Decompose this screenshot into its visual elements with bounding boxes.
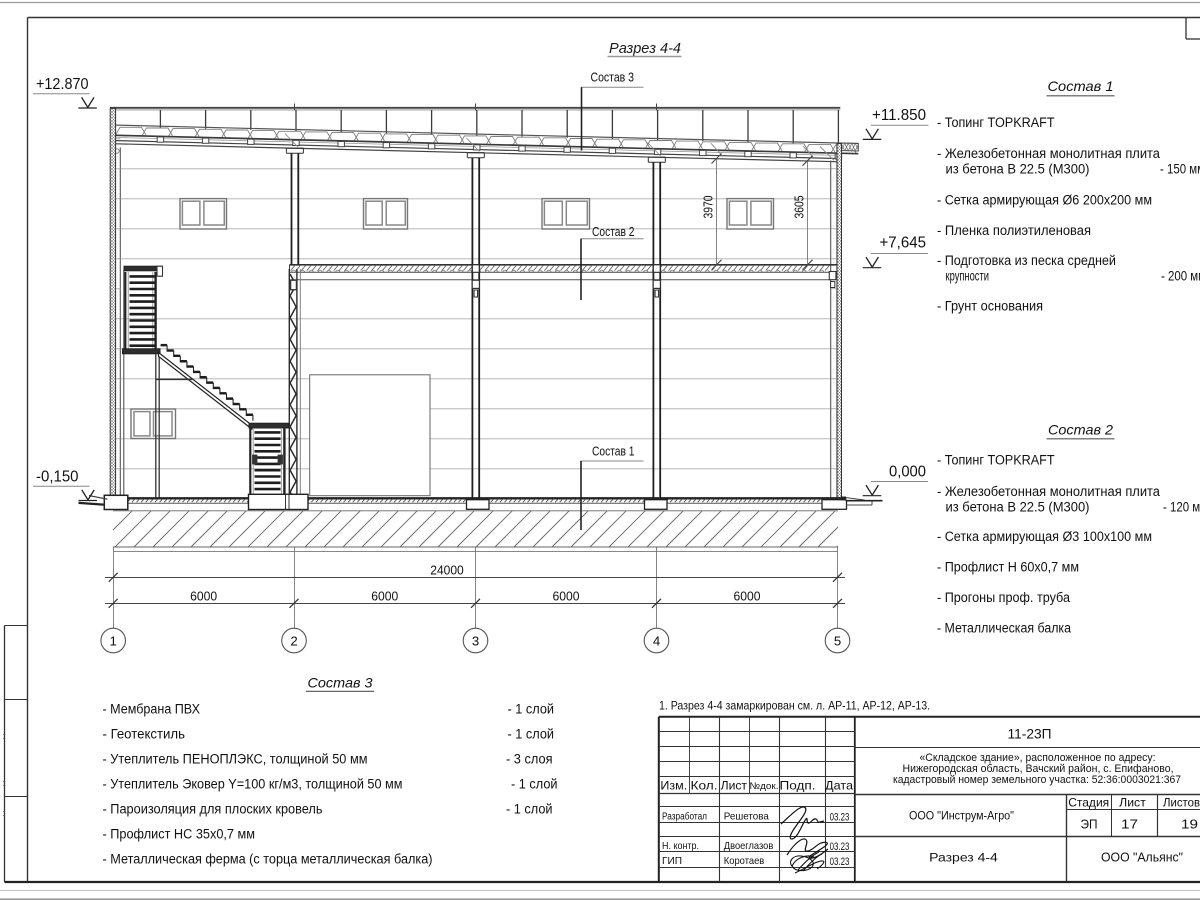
svg-text:- Профлист НС 35х0,7 мм: - Профлист НС 35х0,7 мм <box>103 827 256 842</box>
svg-text:ООО "Инструм-Агро": ООО "Инструм-Агро" <box>909 809 1014 823</box>
svg-text:Кол.: Кол. <box>691 779 718 793</box>
svg-text:Разработал: Разработал <box>662 811 707 822</box>
svg-text:- Пароизоляция для плоских кро: - Пароизоляция для плоских кровель <box>103 802 323 817</box>
svg-text:- 1 слой: - 1 слой <box>508 727 555 742</box>
svg-text:- 150 мм: - 150 мм <box>1160 162 1200 177</box>
svg-text:- Сетка армирующая Ø3 100х100: - Сетка армирующая Ø3 100х100 мм <box>937 529 1152 544</box>
svg-text:+11.850: +11.850 <box>872 107 926 124</box>
svg-text:- Утеплитель ПЕНОПЛЭКС, толщин: - Утеплитель ПЕНОПЛЭКС, толщиной 50 мм <box>103 752 368 767</box>
svg-text:Состав 2: Состав 2 <box>592 224 635 239</box>
svg-text:- Металлическая ферма (с торца: - Металлическая ферма (с торца металличе… <box>103 852 433 867</box>
svg-text:03.23: 03.23 <box>830 856 850 868</box>
svg-text:- Пленка полиэтиленовая: - Пленка полиэтиленовая <box>937 223 1091 238</box>
svg-text:5: 5 <box>834 633 841 648</box>
svg-text:- 1 слой: - 1 слой <box>508 702 555 717</box>
svg-text:19: 19 <box>1181 817 1198 832</box>
svg-text:Разрез 4-4: Разрез 4-4 <box>609 40 681 57</box>
svg-text:1. Разрез 4-4 замаркирован см.: 1. Разрез 4-4 замаркирован см. л. АР-11,… <box>659 699 930 713</box>
svg-text:+12.870: +12.870 <box>36 76 89 93</box>
svg-text:Изм.: Изм. <box>660 779 687 793</box>
svg-text:Состав 3: Состав 3 <box>308 676 373 691</box>
svg-text:- Железобетонная монолитная п: - Железобетонная монолитная плита <box>937 146 1161 161</box>
svg-text:- 1 слой: - 1 слой <box>506 802 553 817</box>
svg-text:Разрез 4-4: Разрез 4-4 <box>929 851 998 865</box>
svg-text:Подп.: Подп. <box>780 779 816 793</box>
svg-text:Состав 3: Состав 3 <box>591 70 635 85</box>
svg-text:24000: 24000 <box>430 563 464 578</box>
svg-text:- 3 слоя: - 3 слоя <box>506 752 553 767</box>
svg-text:№док.: №док. <box>750 781 779 792</box>
svg-text:- Топинг TOPKRAFT: - Топинг TOPKRAFT <box>937 453 1055 468</box>
svg-text:Решетова: Решетова <box>724 811 769 822</box>
svg-text:Лист: Лист <box>1119 796 1146 810</box>
svg-text:- 1 слой: - 1 слой <box>511 777 558 792</box>
svg-text:6000: 6000 <box>553 589 580 604</box>
svg-text:- Железобетонная монолитная п: - Железобетонная монолитная плита <box>937 484 1161 499</box>
svg-text:Листов: Листов <box>1163 796 1200 810</box>
svg-text::: : <box>3 778 6 788</box>
svg-text::: : <box>3 808 6 818</box>
svg-text:ГИП: ГИП <box>662 856 682 867</box>
svg-text:3605: 3605 <box>793 195 807 218</box>
svg-text:1: 1 <box>110 633 117 648</box>
svg-text:Двоеглазов: Двоеглазов <box>724 841 774 852</box>
svg-text:ООО "Альянс": ООО "Альянс" <box>1101 850 1183 865</box>
svg-text:- Утеплитель Эковер Y=100 кг/м: - Утеплитель Эковер Y=100 кг/м3, толщино… <box>103 777 403 792</box>
svg-text:ЭП: ЭП <box>1081 817 1098 832</box>
svg-text:03.23: 03.23 <box>830 841 850 853</box>
svg-text:из бетона В 22.5 (М300): из бетона В 22.5 (М300) <box>946 162 1090 177</box>
svg-text:Состав 1: Состав 1 <box>592 444 635 459</box>
svg-text:0,000: 0,000 <box>889 464 926 481</box>
svg-text:-0,150: -0,150 <box>36 469 79 486</box>
svg-text:03.23: 03.23 <box>830 812 850 824</box>
svg-text:Состав 1: Состав 1 <box>1048 79 1114 94</box>
svg-text:- Грунт основания: - Грунт основания <box>937 299 1043 314</box>
svg-text:6000: 6000 <box>371 589 398 604</box>
svg-text:крупности: крупности <box>946 269 990 284</box>
svg-text:3970: 3970 <box>702 195 716 218</box>
svg-text:- Профлист Н 60х0,7 мм: - Профлист Н 60х0,7 мм <box>937 560 1079 575</box>
svg-text:- Мембрана ПВХ: - Мембрана ПВХ <box>103 702 201 717</box>
svg-text:6000: 6000 <box>190 589 217 604</box>
svg-text:- Прогоны проф. труба: - Прогоны проф. труба <box>937 590 1071 605</box>
svg-text:Дата: Дата <box>825 779 853 793</box>
svg-text:17: 17 <box>1121 817 1138 832</box>
svg-text:+7,645: +7,645 <box>880 235 927 252</box>
svg-text:- Топинг TOPKRAFT: - Топинг TOPKRAFT <box>937 115 1055 130</box>
svg-text:3: 3 <box>472 633 479 648</box>
svg-text:- Сетка армирующая Ø6 200х200: - Сетка армирующая Ø6 200х200 мм <box>937 193 1152 208</box>
svg-text:Коротаев: Коротаев <box>724 856 765 867</box>
svg-text:кадастровый номер земельного у: кадастровый номер земельного участка: 52… <box>893 774 1181 786</box>
svg-text:4: 4 <box>653 633 660 648</box>
svg-text::: : <box>3 731 6 741</box>
svg-text:Состав 2: Состав 2 <box>1048 423 1113 438</box>
svg-text:Стадия: Стадия <box>1068 796 1109 810</box>
svg-text:- Подготовка из песка средней: - Подготовка из песка средней <box>937 253 1116 268</box>
svg-text:Лист: Лист <box>721 779 748 793</box>
svg-text:Н. контр.: Н. контр. <box>662 841 699 852</box>
svg-text:- Геотекстиль: - Геотекстиль <box>103 727 186 742</box>
svg-text:2: 2 <box>290 633 297 648</box>
svg-text:- 120 мм: - 120 мм <box>1163 500 1200 515</box>
svg-text:из бетона В 22.5 (М300): из бетона В 22.5 (М300) <box>946 500 1090 515</box>
svg-text:- Металлическая балка: - Металлическая балка <box>937 621 1072 636</box>
svg-text:11-23П: 11-23П <box>1008 727 1052 742</box>
svg-text:- 200 мм: - 200 мм <box>1161 269 1200 284</box>
svg-text:6000: 6000 <box>734 589 761 604</box>
